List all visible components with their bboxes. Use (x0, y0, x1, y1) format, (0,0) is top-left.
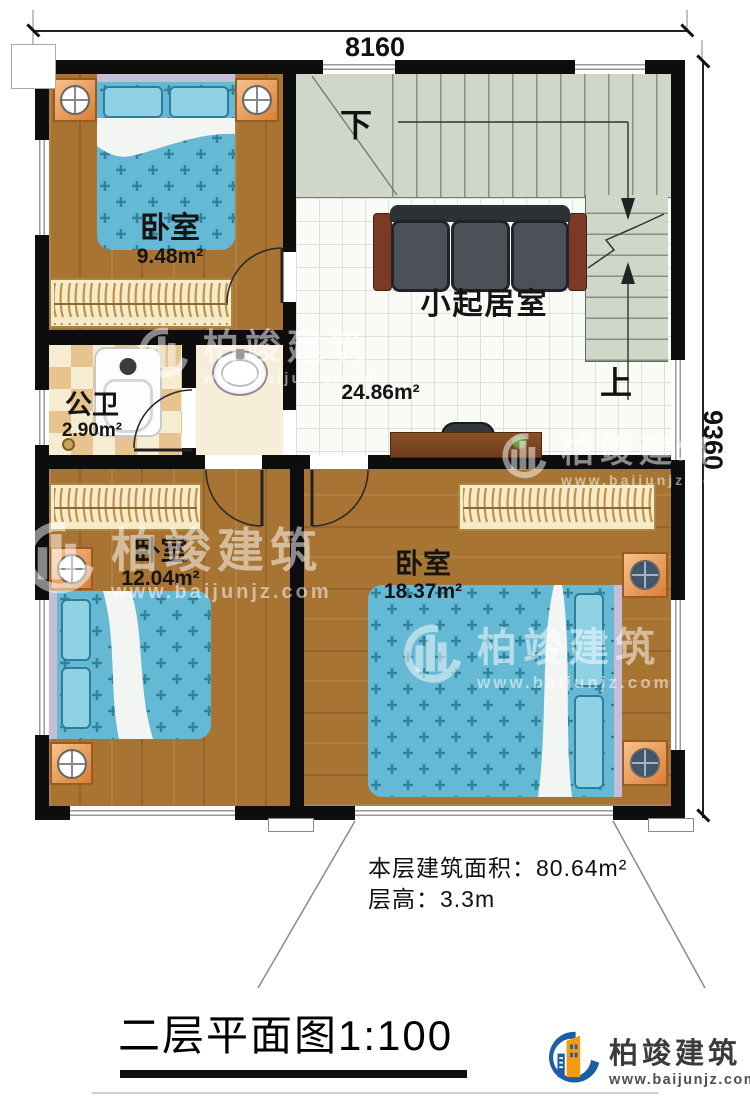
sofa-seat (391, 220, 450, 292)
window-left-bedroom-tl (35, 140, 49, 235)
nightstand (622, 552, 668, 598)
sofa-seat (511, 220, 569, 292)
wash-basin (212, 350, 268, 396)
nightstand (50, 547, 93, 590)
pillow (61, 599, 91, 661)
room-name: 卧室 (358, 549, 488, 580)
room-area: 2.90m² (42, 421, 142, 442)
wardrobe-bottom-right (458, 483, 656, 531)
nightstand (53, 78, 97, 122)
wardrobe-rail (463, 507, 651, 509)
lamp-icon (242, 85, 272, 115)
sofa-seat (451, 220, 510, 292)
room-label-bedroom-br: 卧室 18.37m² (358, 549, 488, 603)
stair-down-label: 下 (340, 100, 372, 146)
room-label-living: 小起居室 (402, 288, 567, 321)
porch-column-right (648, 818, 694, 832)
wardrobe-rail (54, 303, 228, 305)
room-area: 24.86m² (318, 381, 443, 404)
brand-name: 柏竣建筑 (609, 1030, 750, 1072)
room-name: 卧室 (93, 537, 228, 567)
room-area: 9.48m² (95, 245, 245, 268)
toilet-drain-icon (120, 358, 137, 375)
pillow (574, 695, 604, 789)
window-right-bedroom-br (671, 600, 685, 750)
bed-headboard (49, 591, 57, 739)
wall-bedroom-tl-right-a (283, 60, 296, 252)
bed-mattress (57, 591, 211, 739)
room-name: 小起居室 (402, 288, 567, 321)
wall-bathroom-top (35, 330, 296, 345)
brand-logo: 柏竣建筑 www.baijunjz.com (543, 1030, 750, 1088)
pillow (61, 667, 91, 729)
nightstand (235, 78, 279, 122)
bed-bottom-left (49, 591, 211, 739)
room-area-living: 24.86m² (318, 381, 443, 404)
roof-outline-left (258, 821, 355, 988)
bed-headboard (614, 585, 622, 797)
room-name: 卧室 (95, 212, 245, 245)
room-name: 公卫 (42, 391, 142, 421)
sheet-title: 二层平面图1:100 (118, 1002, 453, 1063)
room-label-bathroom: 公卫 2.90m² (42, 391, 142, 442)
stair-treads-upper (392, 74, 663, 197)
wardrobe-bottom-left (49, 483, 202, 531)
roof-outline-right (613, 821, 705, 988)
faucet-icon (236, 349, 245, 359)
room-label-bedroom-tl: 卧室 9.48m² (95, 212, 245, 268)
window-bottom-bedroom-bl (70, 806, 235, 820)
wall-middle-b (262, 455, 310, 469)
lamp-icon (60, 85, 90, 115)
brand-url: www.baijunjz.com (609, 1072, 750, 1088)
lamp-icon (57, 749, 87, 779)
note-floor-height: 层高：3.3m (368, 880, 495, 914)
wardrobe-top-left (49, 278, 233, 328)
dimension-corner-box (11, 44, 56, 89)
sofa (373, 205, 587, 293)
nightstand (622, 740, 668, 786)
dimension-width: 8160 (300, 32, 450, 63)
lamp-icon (57, 554, 87, 584)
bed-headboard (97, 74, 235, 82)
nightstand (50, 742, 93, 785)
basin-bowl (221, 359, 259, 387)
lamp-icon (630, 748, 660, 778)
wall-middle-a (35, 455, 205, 469)
floor-plan-page: 卧室 9.48m² 小起居室 24.86m² 公卫 2.90m² 卧室 12.0… (0, 0, 750, 1104)
porch-column-left (268, 818, 314, 832)
pillow (169, 86, 229, 118)
room-area: 18.37m² (358, 580, 488, 603)
lamp-icon (630, 560, 660, 590)
room-label-bedroom-bl: 卧室 12.04m² (93, 537, 228, 590)
window-bottom-bedroom-br (355, 806, 613, 820)
room-area: 12.04m² (93, 567, 228, 590)
window-left-bedroom-bl (35, 600, 49, 735)
bed-bottom-right (368, 585, 622, 797)
dimension-height: 9360 (697, 380, 728, 500)
sofa-armrest (568, 213, 587, 291)
wall-bedroom-tl-right-b (283, 302, 296, 410)
wall-bathroom-right-b (182, 448, 196, 455)
title-underline (120, 1070, 467, 1078)
window-top-stairs-2 (575, 60, 645, 74)
window-right-stairs (671, 360, 685, 460)
bed-mattress (368, 585, 614, 797)
sofa-armrest (373, 213, 392, 291)
pillow (103, 86, 163, 118)
wardrobe-rail (54, 507, 197, 509)
stair-flight-right (585, 195, 668, 362)
wall-bedrooms-divider (290, 469, 304, 806)
brand-building-icon (543, 1030, 601, 1088)
wall-bathroom-right-a (182, 345, 196, 388)
note-floor-area: 本层建筑面积：80.64m² (368, 849, 627, 883)
pillow (574, 593, 604, 687)
stair-up-label: 上 (600, 358, 632, 404)
plant-icon (512, 434, 527, 449)
separator-rule (92, 1092, 658, 1094)
